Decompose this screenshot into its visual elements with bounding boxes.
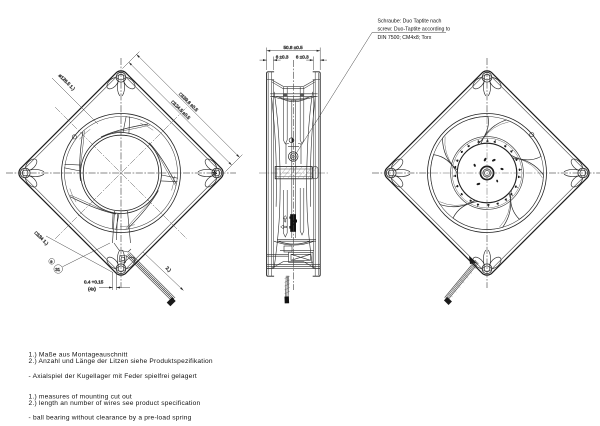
svg-text:6 ±0.3: 6 ±0.3: [296, 54, 309, 59]
svg-text:Schraube: Duo Taptite nach: Schraube: Duo Taptite nach: [378, 19, 442, 25]
svg-text:0.4 +0.15: 0.4 +0.15: [84, 280, 104, 285]
svg-text:- Axialspiel der Kugellager mi: - Axialspiel der Kugellager mit Feder sp…: [29, 373, 197, 380]
svg-text:6 ±0.3: 6 ±0.3: [276, 54, 289, 59]
svg-text:screw: Duo-Taptite according t: screw: Duo-Taptite according to: [378, 27, 451, 33]
svg-text:- ball bearing without clearan: - ball bearing without clearance by a pr…: [29, 415, 192, 422]
svg-text:(4x): (4x): [88, 287, 96, 292]
svg-text:50.8 ±0.5: 50.8 ±0.5: [284, 45, 304, 50]
svg-text:31: 31: [55, 267, 60, 272]
svg-text:DIN 7500; CM4x8; Torx: DIN 7500; CM4x8; Torx: [378, 35, 432, 41]
svg-text:2.) Anzahl und Länge der Litze: 2.) Anzahl und Länge der Litzen siehe Pr…: [29, 358, 213, 365]
svg-text:2.) length an number of wires: 2.) length an number of wires see produc…: [29, 400, 201, 407]
